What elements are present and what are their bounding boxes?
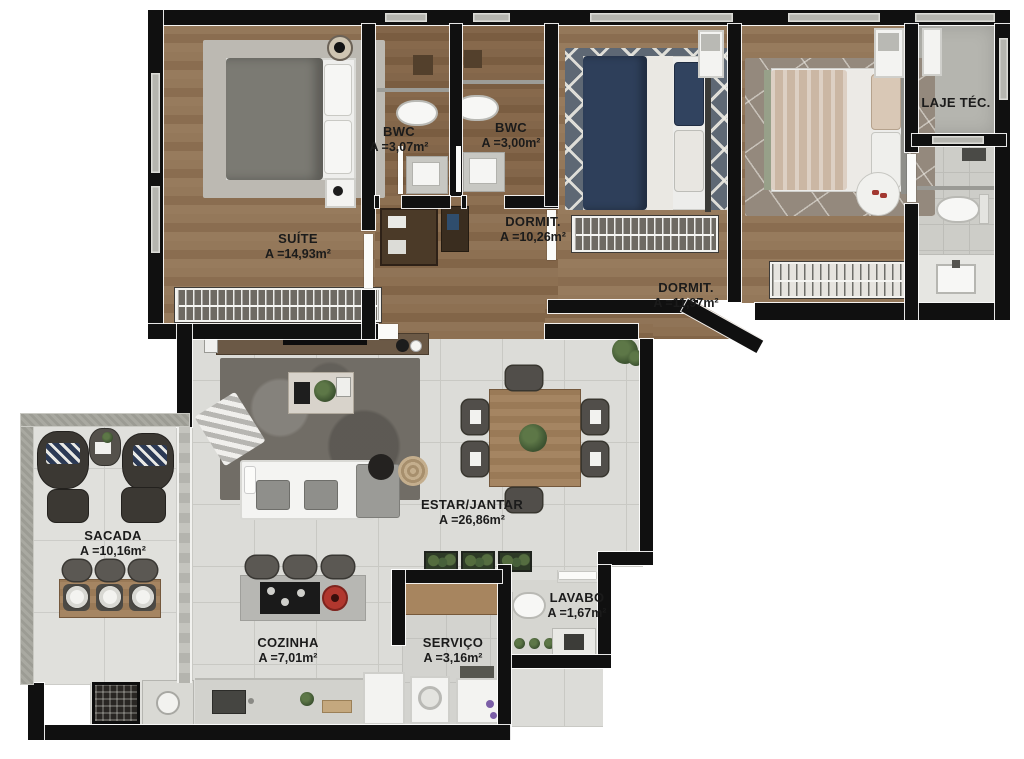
kitchen-faucet — [248, 698, 254, 704]
wall-bwc2-dormit1-divider — [545, 24, 558, 206]
dining-chair — [462, 442, 488, 476]
room-label-cozinha: COZINHA A =7,01m² — [257, 635, 318, 667]
suite-wardrobe-rack — [175, 288, 381, 322]
dormit1-duvet — [583, 56, 647, 210]
wall-dormit-divider — [728, 24, 741, 302]
room-label-servico: SERVIÇO A =3,16m² — [423, 635, 483, 667]
wall-servico-lavabo-divider — [498, 565, 511, 740]
dormit2-duvet-fold — [847, 70, 873, 190]
kitchen-sink — [212, 690, 246, 714]
window — [590, 13, 733, 22]
laje-vent — [932, 136, 984, 144]
wall-balcony-corner — [28, 683, 44, 740]
sofa-cushion — [256, 480, 290, 510]
dining-chair — [462, 400, 488, 434]
suite-nightstand-decor — [333, 186, 343, 196]
room-label-estar: ESTAR/JANTAR A =26,86m² — [421, 497, 523, 529]
dining-table-plant — [519, 424, 547, 452]
bwc1-shower-glass — [377, 88, 450, 92]
bar-plate — [66, 586, 88, 608]
room-label-dormit2: DORMIT. A =11,97m² — [653, 280, 718, 312]
cooktop-burner — [281, 598, 289, 606]
cooktop-burner — [297, 589, 305, 597]
dormit2-shoes — [872, 190, 879, 195]
bathroom-right-door-leaf — [907, 154, 916, 202]
balcony-stool — [129, 560, 157, 581]
hall-door-leaf — [378, 324, 398, 339]
cooktop-burner — [267, 587, 275, 595]
balcony-armchair-pillow — [133, 445, 167, 466]
dormit2-shoes — [880, 193, 887, 198]
bwc2-sink-basin — [469, 158, 497, 184]
window — [473, 13, 510, 22]
wall-bottom — [44, 725, 510, 740]
balcony-ottoman — [48, 490, 88, 522]
dormit2-door-gap — [638, 324, 653, 339]
suite-side-table-decor — [334, 42, 345, 53]
suite-pillow — [324, 120, 352, 174]
kitchen-stool — [322, 556, 354, 578]
dormit1-pillow — [674, 130, 704, 192]
laundry-item — [486, 700, 494, 708]
room-label-suite: SUÍTE A =14,93m² — [265, 231, 331, 263]
wall-suite-right-lower — [362, 290, 375, 339]
bwc1-toilet — [396, 100, 438, 126]
laundry-item — [490, 712, 497, 719]
wall-lavabo-bottom — [500, 655, 611, 668]
wall-bwc2-bottom-stub — [462, 196, 466, 208]
kitchen-stool — [284, 556, 316, 578]
window — [915, 13, 995, 22]
bwc2-cabinet — [464, 50, 482, 68]
room-label-sacada: SACADA A =10,16m² — [80, 528, 146, 560]
balcony-plant — [102, 432, 113, 443]
wall-living-west — [177, 324, 192, 427]
bwc2-shower-glass — [462, 80, 545, 84]
napkin — [590, 452, 601, 466]
bwc1-cabinet — [413, 55, 433, 75]
wall-bwc1-bottom — [402, 196, 450, 208]
lavabo-toilet — [512, 592, 546, 619]
coffee-table-book — [294, 382, 310, 404]
wall-living-top-right — [545, 324, 638, 339]
wall-lavabo-connector — [598, 552, 653, 565]
coffee-table-art — [336, 377, 351, 397]
bathroom-right-toilet — [936, 196, 980, 223]
window — [385, 13, 427, 22]
planter-hedge — [461, 551, 495, 572]
dormit2-shelf-art — [878, 33, 899, 51]
servico-shelf — [405, 584, 499, 614]
lavabo-plant — [529, 638, 540, 649]
suite-pillow — [324, 64, 352, 116]
balcony-armchair-pillow — [46, 443, 80, 464]
sofa-cushion — [304, 480, 338, 510]
hall-side-unit-decor — [447, 214, 459, 230]
napkin — [590, 410, 601, 424]
balcony-stool — [96, 560, 124, 581]
servico-appliance-top — [460, 666, 494, 678]
dining-chair — [582, 442, 608, 476]
room-label-lavabo: LAVABO A =1,67m² — [548, 590, 607, 622]
wall-laje-divider-lower — [905, 204, 918, 320]
coffee-table-plant — [314, 380, 336, 402]
dormit1-wardrobe-rack — [572, 216, 718, 252]
fridge — [363, 672, 405, 725]
room-label-laje: LAJE TÉC. — [921, 95, 990, 111]
lavabo-door-leaf — [559, 572, 596, 579]
bathroom-right-sink-basin — [936, 264, 976, 294]
dining-chair — [582, 400, 608, 434]
hall-cabinet-dish — [388, 216, 406, 228]
lavabo-sink-basin — [564, 634, 584, 650]
dormit1-duvet-fold — [647, 56, 673, 210]
dormit1-shelf-art — [701, 34, 720, 51]
window — [151, 73, 160, 173]
floor-plan: SUÍTE A =14,93m² BWC A =3,07m² BWC A =3,… — [0, 0, 1024, 759]
hall-cabinet-dish — [388, 240, 406, 254]
napkin — [470, 452, 481, 466]
bar-plate — [99, 586, 121, 608]
wall-dormit2-bottom — [755, 303, 1008, 320]
balcony-sink — [156, 691, 180, 715]
dormit2-pillow — [871, 74, 901, 130]
suite-door-leaf — [364, 234, 373, 288]
bwc1-sink-basin — [412, 162, 440, 186]
kitchen-stool — [246, 556, 278, 578]
wall-laje-divider-upper — [905, 24, 918, 152]
balcony-parapet-left — [20, 413, 34, 685]
window — [999, 38, 1008, 100]
napkin — [470, 410, 481, 424]
cutting-board — [322, 700, 352, 713]
bathroom-right-shower-glass — [917, 186, 995, 190]
balcony-sliding-door — [177, 427, 192, 683]
room-label-dormit1: DORMIT. A =10,26m² — [500, 214, 566, 246]
balcony-magazine — [95, 442, 111, 454]
dormit2-duvet — [771, 70, 847, 190]
dormit2-wardrobe-rack — [770, 262, 906, 298]
kitchen-plant — [300, 692, 314, 706]
planter-hedge — [424, 551, 458, 572]
bwc2-door-leaf — [456, 146, 461, 192]
red-pot-lid — [331, 594, 339, 602]
sofa-pillow — [244, 466, 256, 494]
suite-bed-duvet — [226, 58, 323, 180]
bar-plate — [132, 586, 154, 608]
wall-living-right — [640, 339, 653, 565]
side-table-black — [368, 454, 394, 480]
laje-equipment — [922, 28, 942, 76]
lavabo-plant — [514, 638, 525, 649]
wall-servico-top — [392, 570, 502, 583]
barbecue-grill — [92, 682, 140, 724]
balcony-parapet-top — [20, 413, 190, 427]
dining-chair — [506, 366, 542, 390]
room-label-bwc1: BWC A =3,07m² — [370, 124, 429, 156]
rattan-pouf — [398, 456, 428, 486]
window — [151, 186, 160, 253]
balcony-ottoman — [122, 488, 165, 522]
window — [788, 13, 880, 22]
shower-head-icon — [962, 148, 986, 161]
living-decor-black — [396, 339, 409, 352]
wall-left — [148, 10, 163, 339]
washing-machine-door — [418, 686, 442, 710]
balcony-stool — [63, 560, 91, 581]
room-label-bwc2: BWC A =3,00m² — [482, 120, 541, 152]
wall-top — [148, 10, 1010, 25]
living-decor-white — [410, 340, 422, 352]
bathroom-right-toilet-tank — [979, 194, 989, 224]
wall-bwc1-bottom-stub — [375, 196, 379, 208]
wall-servico-left — [392, 570, 405, 645]
bathroom-right-faucet — [952, 260, 960, 268]
